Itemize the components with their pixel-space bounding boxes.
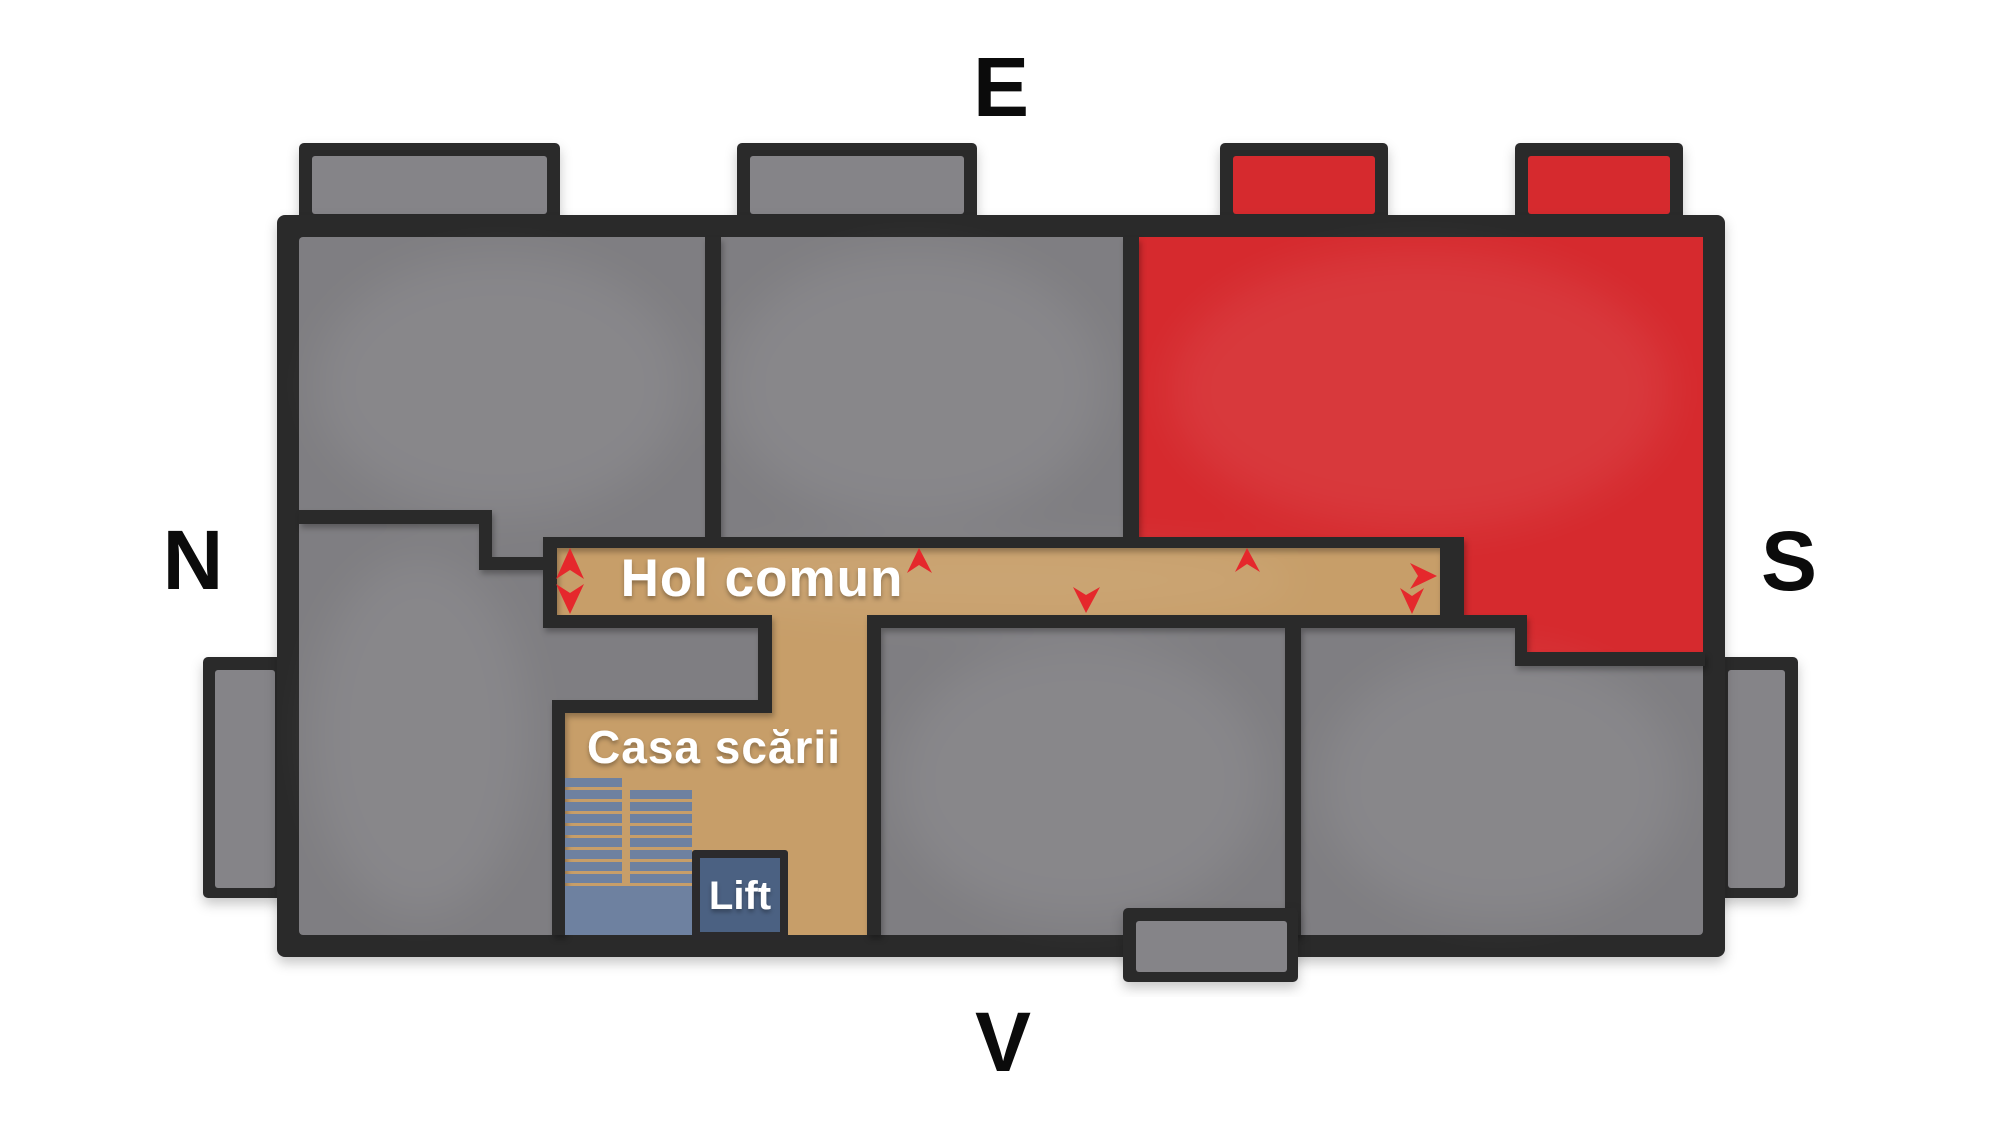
- stair-step: [565, 838, 622, 847]
- stair-step: [565, 802, 622, 811]
- stair-step: [630, 790, 692, 799]
- stair-step: [630, 826, 692, 835]
- balcony-left-floor: [215, 670, 275, 888]
- room-highlight: [315, 255, 685, 515]
- stair-step: [565, 826, 622, 835]
- stair-step: [630, 850, 692, 859]
- wall-hallway-top: [543, 537, 1464, 548]
- wall-red-extension-step: [1515, 617, 1527, 666]
- balcony-red-1-floor: [1233, 156, 1375, 214]
- compass-west: V: [975, 995, 1031, 1089]
- stair-step: [565, 850, 622, 859]
- room-highlight: [310, 555, 530, 915]
- wall-topleft-bottomleft: [299, 510, 479, 524]
- staircase-label: Casa scării: [587, 721, 841, 773]
- stair-step: [630, 802, 692, 811]
- balcony-top-left-floor: [312, 156, 547, 214]
- wall-hallway-bottom-left: [543, 615, 772, 628]
- balcony-red-2-floor: [1528, 156, 1670, 214]
- wall-red-extension-bottom: [1515, 652, 1705, 666]
- balcony-bottom-floor: [1136, 921, 1287, 972]
- wall-bottommiddle-bottomright: [1285, 615, 1301, 935]
- stair-step: [565, 862, 622, 871]
- floor-plan-svg: Hol comun Casa scării Lift E N S V: [0, 0, 2000, 1125]
- compass-east: E: [973, 40, 1029, 134]
- balcony-right-floor: [1728, 670, 1785, 888]
- wall-hallway-end: [1440, 537, 1464, 628]
- balcony-bottom: [1123, 908, 1298, 982]
- floor-plan-canvas: Hol comun Casa scării Lift E N S V: [0, 0, 2000, 1125]
- wall-hallway-left: [543, 537, 557, 628]
- stair-step: [565, 874, 622, 883]
- stair-step: [630, 874, 692, 883]
- elevator-label: Lift: [709, 874, 771, 918]
- wall-topmiddle-red: [1123, 237, 1139, 540]
- room-highlight: [1320, 650, 1680, 920]
- compass-south: S: [1761, 514, 1817, 608]
- wall-staircase-right: [867, 615, 881, 935]
- stair-step: [565, 814, 622, 823]
- room-highlight: [895, 640, 1265, 920]
- wall-staircase-top: [552, 700, 772, 713]
- wall-hallway-bottom-right: [867, 615, 1527, 628]
- balcony-top-middle-floor: [750, 156, 964, 214]
- wall-staircase-left: [552, 700, 565, 935]
- wall-topleft-topmiddle: [705, 237, 721, 540]
- stair-step: [630, 838, 692, 847]
- stair-step: [630, 862, 692, 871]
- stair-step: [565, 790, 622, 799]
- stair-step: [630, 814, 692, 823]
- room-highlight: [1170, 250, 1670, 530]
- room-highlight: [725, 250, 1105, 520]
- stair-step: [565, 778, 622, 787]
- wall-connector-left: [758, 615, 772, 713]
- compass-north: N: [163, 513, 224, 607]
- stair-landing: [565, 886, 692, 935]
- hallway-label: Hol comun: [621, 549, 904, 608]
